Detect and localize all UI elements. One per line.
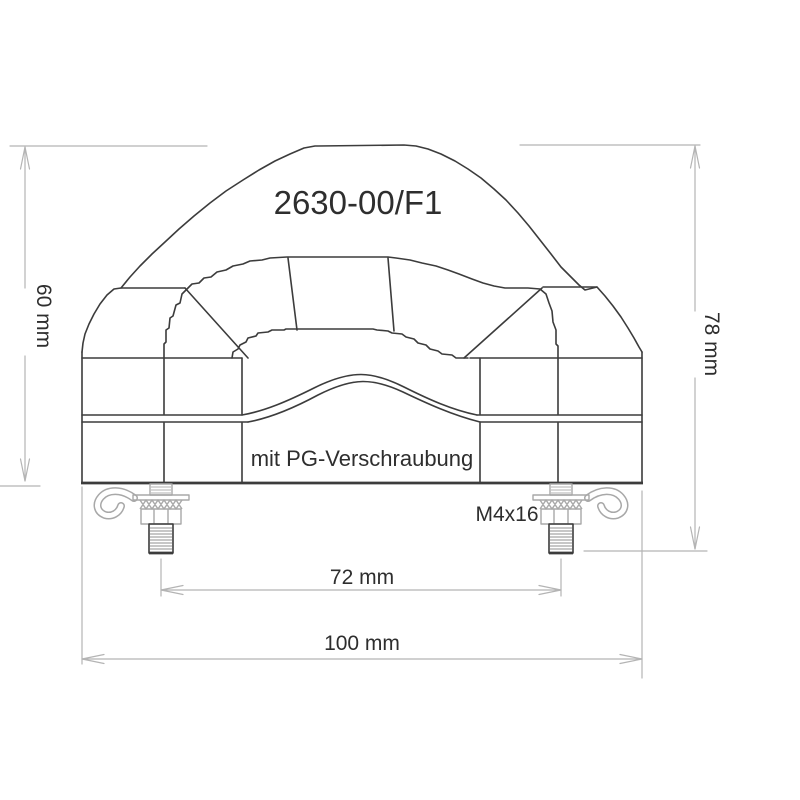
right-bolt-lower-threads <box>550 528 572 549</box>
cover-dome-outline <box>82 145 642 352</box>
fan-radial-lines <box>185 258 542 358</box>
left-washer-plate <box>133 495 189 500</box>
dim-text-78mm: 78 mm <box>700 312 723 376</box>
dim-text-60mm: 60 mm <box>32 284 55 348</box>
fan-section <box>121 257 597 358</box>
labels: 2630-00/F1 mit PG-Verschraubung M4x16 60… <box>32 184 723 655</box>
cable-clamp-drawing: 2630-00/F1 mit PG-Verschraubung M4x16 60… <box>0 0 800 800</box>
fan-outer-arc <box>164 257 558 358</box>
technical-drawing-page: 2630-00/F1 mit PG-Verschraubung M4x16 60… <box>0 0 800 800</box>
fan-inner-arc <box>232 329 468 358</box>
dim-text-100mm: 100 mm <box>324 632 400 655</box>
pg-note-label: mit PG-Verschraubung <box>251 446 474 471</box>
left-hex-nut <box>141 509 181 524</box>
right-bolt-assembly <box>533 484 624 553</box>
left-hex-nut-facets <box>154 509 168 524</box>
left-bolt-upper-threads <box>151 487 171 493</box>
screw-size-label: M4x16 <box>475 503 538 526</box>
right-hex-nut-facets <box>554 509 568 524</box>
right-hex-nut <box>541 509 581 524</box>
right-washer-plate <box>533 495 589 500</box>
cover-dome <box>82 145 642 352</box>
left-bolt-assembly <box>98 484 189 553</box>
right-serrated-washer <box>540 500 582 509</box>
part-number-label: 2630-00/F1 <box>274 184 443 221</box>
dim-text-72mm: 72 mm <box>330 566 394 589</box>
right-bolt-upper-threads <box>551 487 571 493</box>
left-serrated-washer <box>140 500 182 509</box>
left-bolt-lower-threads <box>150 528 172 549</box>
dimension-lines <box>0 145 707 678</box>
